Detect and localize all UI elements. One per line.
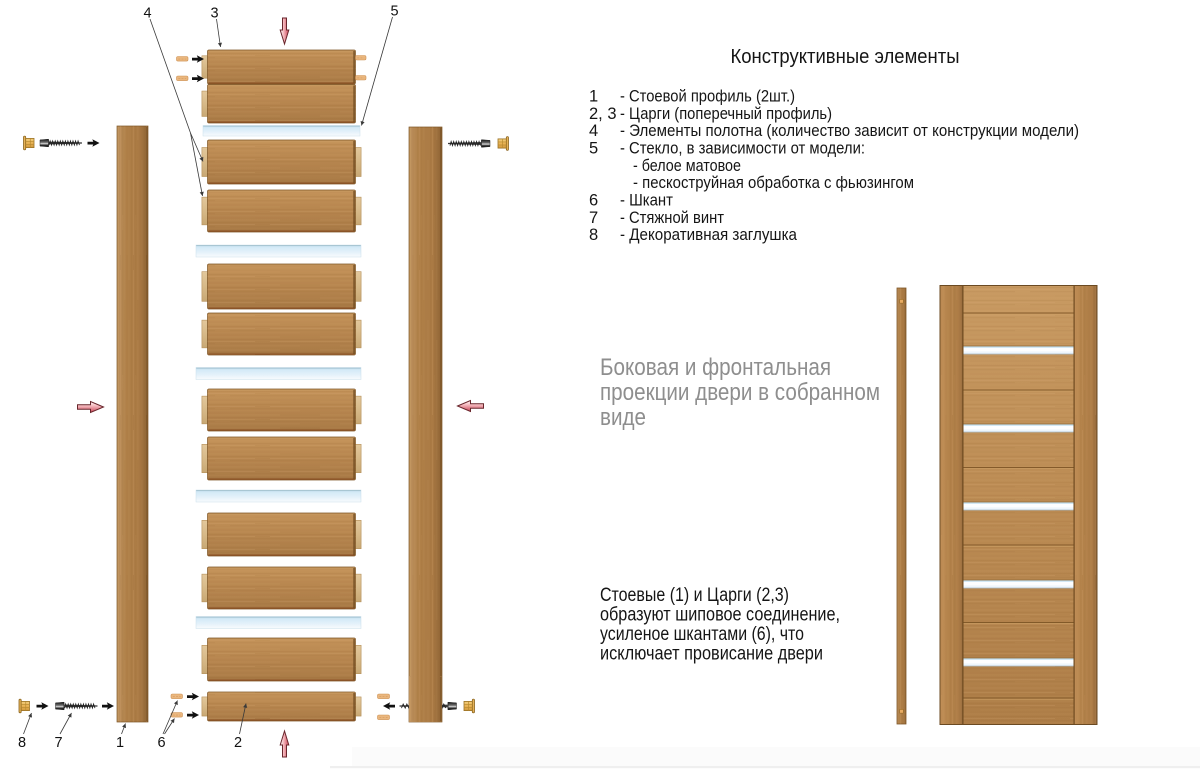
svg-text:виде: виде xyxy=(600,404,646,431)
svg-text:1: 1 xyxy=(116,735,124,751)
svg-text:- белое матовое: - белое матовое xyxy=(633,157,741,175)
svg-text:5: 5 xyxy=(589,140,598,158)
svg-text:- Элементы полотна (количество: - Элементы полотна (количество зависит о… xyxy=(620,122,1079,140)
svg-text:- Царги (поперечный профиль): - Царги (поперечный профиль) xyxy=(620,105,832,123)
svg-text:- Стоевой профиль (2шт.): - Стоевой профиль (2шт.) xyxy=(620,88,795,106)
svg-text:7: 7 xyxy=(589,209,598,227)
svg-text:7: 7 xyxy=(54,735,62,751)
svg-text:4: 4 xyxy=(589,122,598,140)
svg-text:8: 8 xyxy=(18,735,26,751)
svg-text:- Декоративная заглушка: - Декоративная заглушка xyxy=(620,226,798,244)
svg-text:1: 1 xyxy=(589,88,598,106)
svg-text:2, 3: 2, 3 xyxy=(589,105,617,123)
svg-text:Стоевые (1) и Царги (2,3): Стоевые (1) и Царги (2,3) xyxy=(600,585,789,606)
svg-text:3: 3 xyxy=(210,6,218,22)
svg-text:6: 6 xyxy=(157,735,165,751)
svg-text:4: 4 xyxy=(143,6,151,22)
svg-text:- пескоструйная обработка с фь: - пескоструйная обработка с фьюзингом xyxy=(633,174,914,192)
svg-text:усиленое шкантами (6), что: усиленое шкантами (6), что xyxy=(600,624,804,645)
svg-text:8: 8 xyxy=(589,226,598,244)
svg-text:- Стекло, в зависимости от мод: - Стекло, в зависимости от модели: xyxy=(620,140,865,158)
svg-text:- Шкант: - Шкант xyxy=(620,192,673,210)
svg-text:Боковая и фронтальная: Боковая и фронтальная xyxy=(600,354,831,381)
svg-text:5: 5 xyxy=(390,4,398,20)
svg-text:2: 2 xyxy=(234,735,242,751)
svg-text:образуют шиповое соединение,: образуют шиповое соединение, xyxy=(600,605,840,626)
svg-text:Конструктивные элементы: Конструктивные элементы xyxy=(731,45,960,68)
svg-text:- Стяжной винт: - Стяжной винт xyxy=(620,209,724,227)
svg-text:исключает провисание двери: исключает провисание двери xyxy=(600,644,823,665)
svg-text:проекции двери в собранном: проекции двери в собранном xyxy=(600,379,880,406)
svg-text:6: 6 xyxy=(589,192,598,210)
